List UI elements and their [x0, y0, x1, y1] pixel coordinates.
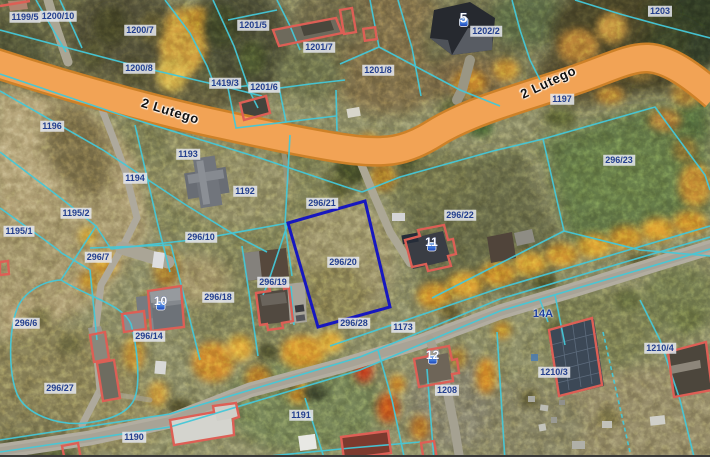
svg-text:11: 11: [425, 235, 438, 249]
svg-text:10: 10: [154, 294, 168, 308]
svg-text:12: 12: [426, 348, 440, 362]
svg-text:5: 5: [460, 10, 468, 26]
